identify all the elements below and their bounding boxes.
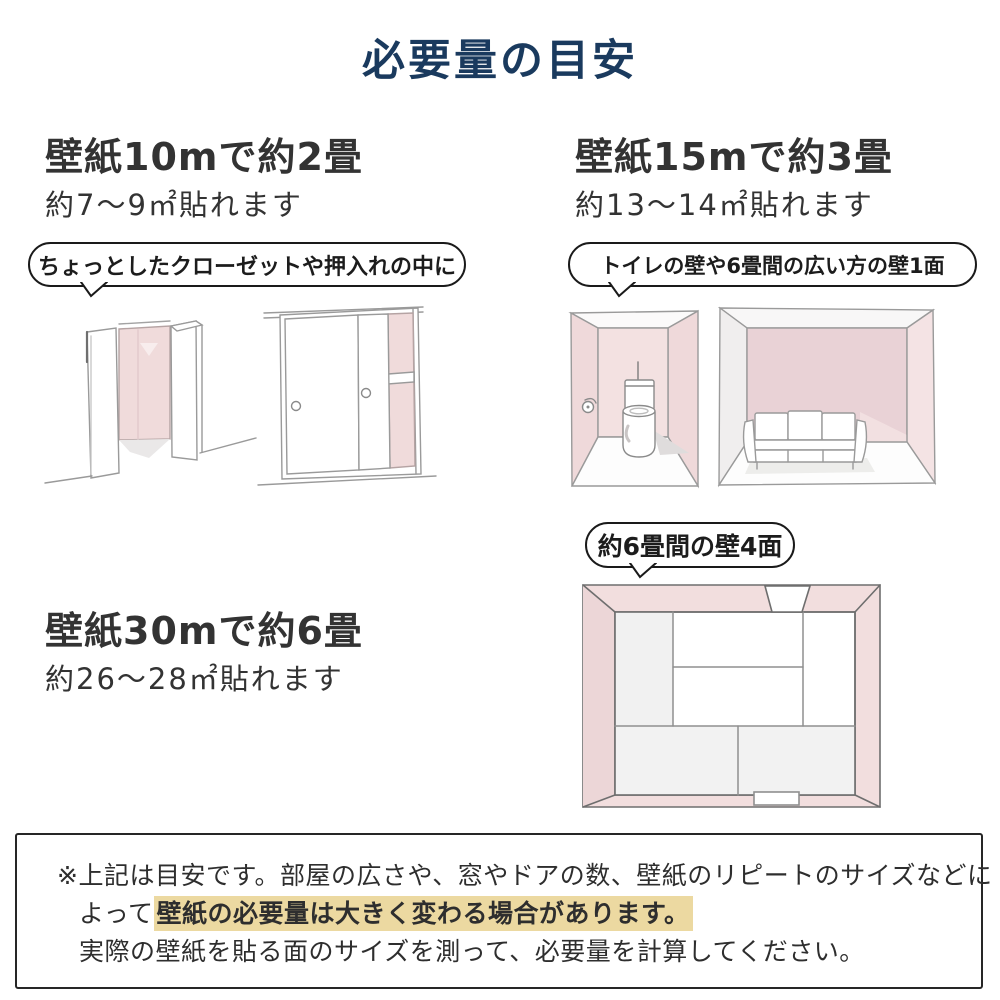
toilet-room-sketch xyxy=(565,300,707,495)
bubble-tail xyxy=(629,563,657,580)
headline-30m: 壁紙30mで約6畳 xyxy=(45,600,363,655)
open-closet-sketch xyxy=(42,300,262,500)
six-mat-room-illustration xyxy=(715,300,943,492)
disclaimer-note-box: ※上記は目安です。部屋の広さや、窓やドアの数、壁紙のリピートのサイズなどに よっ… xyxy=(15,833,983,989)
subline-15m: 約13〜14㎡貼れます xyxy=(575,182,874,224)
bubble-tail xyxy=(608,282,636,299)
subline-30m: 約26〜28㎡貼れます xyxy=(45,656,344,698)
subline-10m: 約7〜9㎡貼れます xyxy=(45,182,303,224)
note-line-2: よって壁紙の必要量は大きく変わる場合があります。 xyxy=(57,895,963,933)
six-mat-room-sketch xyxy=(715,300,943,492)
page-title: 必要量の目安 xyxy=(0,26,1000,88)
speech-bubble-four-walls: 約6畳間の壁4面 xyxy=(585,522,795,568)
note-line-3: 実際の壁紙を貼る面のサイズを測って、必要量を計算してください。 xyxy=(57,933,963,971)
speech-bubble-closet: ちょっとしたクローゼットや押入れの中に xyxy=(28,242,466,287)
headline-10m: 壁紙10mで約2畳 xyxy=(45,126,363,181)
headline-15m: 壁紙15mで約3畳 xyxy=(575,126,893,181)
open-closet-illustration xyxy=(42,300,262,500)
toilet-room-illustration xyxy=(565,300,707,495)
speech-bubble-toilet-wall-label: トイレの壁や6畳間の広い方の壁1面 xyxy=(600,250,944,280)
sliding-closet-illustration xyxy=(255,298,440,490)
speech-bubble-closet-label: ちょっとしたクローゼットや押入れの中に xyxy=(38,249,456,281)
room-top-view-sketch xyxy=(572,583,882,813)
note-line-1: ※上記は目安です。部屋の広さや、窓やドアの数、壁紙のリピートのサイズなどに xyxy=(57,857,963,895)
sliding-closet-sketch xyxy=(255,298,440,490)
note-highlight: 壁紙の必要量は大きく変わる場合があります。 xyxy=(154,896,693,931)
room-top-view-illustration xyxy=(572,583,882,813)
wallpaper-quantity-guide: 必要量の目安 壁紙10mで約2畳 約7〜9㎡貼れます ちょっとしたクローゼットや… xyxy=(0,0,1000,1000)
bubble-tail xyxy=(80,282,108,299)
speech-bubble-toilet-wall: トイレの壁や6畳間の広い方の壁1面 xyxy=(568,242,977,287)
note-line-2-prefix: よって xyxy=(79,899,154,928)
speech-bubble-four-walls-label: 約6畳間の壁4面 xyxy=(598,527,783,563)
